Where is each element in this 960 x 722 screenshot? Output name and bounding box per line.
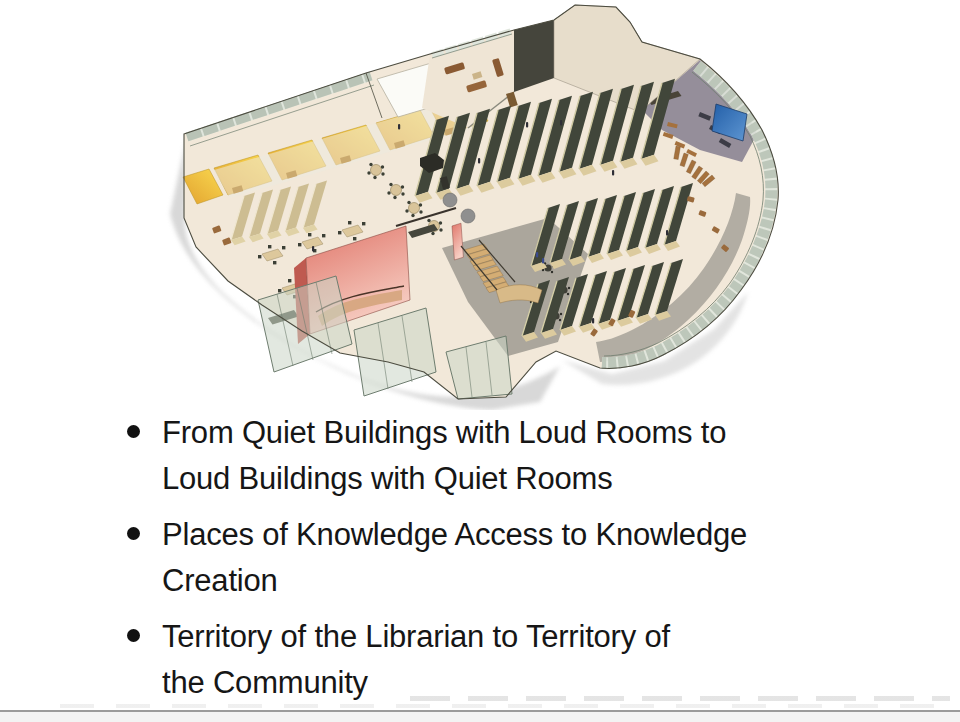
bullet-list: From Quiet Buildings with Loud Rooms to … [127,410,887,716]
bullet-text-line: Territory of the Librarian to Territory … [162,614,670,660]
bullet-item: From Quiet Buildings with Loud Rooms to … [127,410,887,502]
bullet-text-line: Places of Knowledge Access to Knowledge [162,512,747,558]
bullet-text-line: Loud Buildings with Quiet Rooms [162,456,726,502]
bullet-item: Territory of the Librarian to Territory … [127,614,887,706]
library-floorplan-illustration [0,0,960,410]
bullet-icon [127,629,140,642]
bullet-item: Places of Knowledge Access to Knowledge … [127,512,887,604]
bullet-icon [127,425,140,438]
bottom-edge-strip [0,710,960,722]
bullet-icon [127,527,140,540]
bullet-text-line: Creation [162,558,747,604]
bullet-text-line: From Quiet Buildings with Loud Rooms to [162,410,726,456]
video-artifact-dashes [60,704,950,708]
video-artifact-dashes [410,696,950,701]
presentation-slide: From Quiet Buildings with Loud Rooms to … [0,0,960,722]
